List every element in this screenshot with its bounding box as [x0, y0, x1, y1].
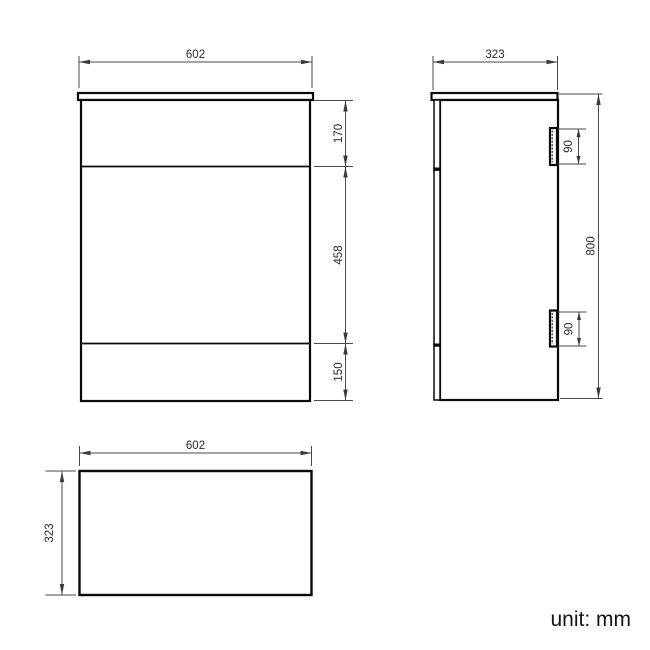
front-height-dimensions: 170 458 150	[314, 101, 353, 401]
hinge-top-label: 90	[563, 140, 575, 153]
front-top-section-label: 170	[333, 124, 345, 143]
arrowhead-icon	[343, 101, 347, 112]
side-depth-label: 323	[485, 49, 504, 61]
arrowhead-icon	[343, 390, 347, 401]
arrowhead-icon	[577, 156, 581, 164]
front-cabinet-body	[81, 100, 310, 401]
front-middle-section-label: 458	[333, 245, 345, 264]
hinge-bottom-dimension: 90	[558, 312, 587, 346]
side-height-dimension: 800	[559, 94, 603, 399]
arrowhead-icon	[433, 60, 444, 64]
arrowhead-icon	[301, 60, 312, 64]
unit-note: unit: mm	[550, 608, 631, 631]
arrowhead-icon	[343, 344, 347, 355]
plan-view: 602 323	[44, 440, 312, 595]
arrowhead-icon	[343, 156, 347, 167]
front-width-dimension: 602	[79, 49, 312, 88]
plan-width-dimension: 602	[80, 440, 312, 466]
side-cabinet-body	[440, 100, 558, 400]
technical-drawing-page: 602 170 458 150	[0, 0, 650, 650]
arrowhead-icon	[343, 167, 347, 178]
arrowhead-icon	[577, 312, 581, 320]
arrowhead-icon	[343, 333, 347, 344]
arrowhead-icon	[547, 60, 558, 64]
front-bottom-section-label: 150	[333, 362, 345, 381]
cabinet-dimension-drawing: 602 170 458 150	[0, 0, 650, 650]
side-door-divider	[433, 344, 440, 347]
side-door-edge	[434, 100, 440, 400]
arrowhead-icon	[60, 471, 64, 482]
arrowhead-icon	[596, 94, 600, 105]
front-width-label: 602	[186, 49, 205, 61]
arrowhead-icon	[79, 60, 90, 64]
front-view: 602 170 458 150	[78, 49, 353, 401]
arrowhead-icon	[577, 338, 581, 346]
plan-depth-dimension: 323	[44, 471, 76, 595]
side-depth-dimension: 323	[433, 49, 558, 90]
hinge-bottom	[550, 311, 557, 347]
hinge-top	[550, 128, 557, 165]
side-height-label: 800	[586, 236, 598, 255]
arrowhead-icon	[60, 584, 64, 595]
arrowhead-icon	[301, 451, 312, 455]
plan-depth-label: 323	[44, 523, 56, 542]
side-door-divider	[433, 168, 440, 171]
hinge-bottom-label: 90	[564, 323, 576, 336]
arrowhead-icon	[577, 129, 581, 137]
plan-outline	[80, 471, 312, 595]
side-view: 323 90 90	[432, 49, 603, 400]
plan-width-label: 602	[186, 440, 205, 452]
arrowhead-icon	[596, 388, 600, 399]
arrowhead-icon	[80, 451, 91, 455]
hinge-top-dimension: 90	[558, 129, 586, 164]
